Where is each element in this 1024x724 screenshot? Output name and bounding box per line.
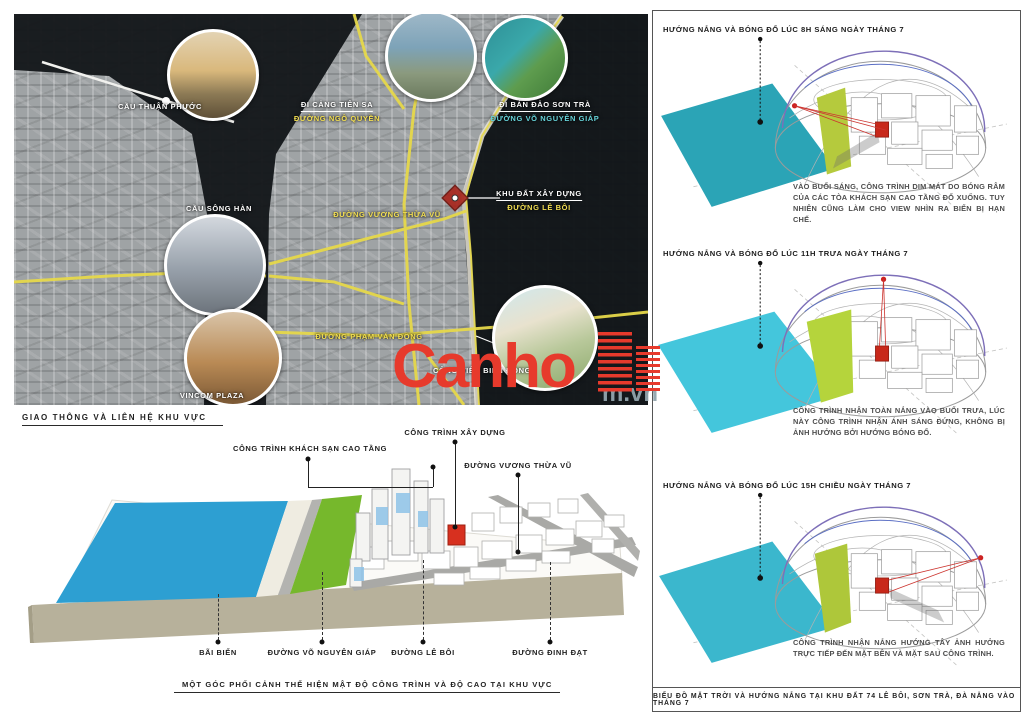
label-cau-song-han: CẦU SÔNG HÀN [186,204,252,213]
label-di-ban-dao-son-tra: ĐI BÁN ĐẢO SƠN TRÀ [499,100,591,112]
sun-panel-caption: BIỂU ĐỒ MẶT TRỜI VÀ HƯỚNG NẮNG TẠI KHU Đ… [653,687,1020,711]
sun-section-8h: HƯỚNG NẮNG VÀ BÓNG ĐỔ LÚC 8H SÁNG NGÀY T… [653,23,1020,247]
watermark-building-icon-2 [636,346,660,394]
leader-dot [548,640,553,645]
sun-desc-15h: CÔNG TRÌNH NHẬN NẮNG HƯỚNG TÂY ẢNH HƯỞNG… [793,637,1005,659]
leader-line [423,560,424,640]
label-di-cang-tien-sa: ĐI CẢNG TIÊN SA [301,100,373,112]
leader-dot [516,473,521,478]
watermark: m.vn Canho [392,330,660,410]
label-duong-dinh-dat: ĐƯỜNG ĐINH ĐẠT [512,648,588,657]
son-tra-peninsula-photo [482,15,568,101]
label-duong-vo-nguyen-giap-3d: ĐƯỜNG VÕ NGUYÊN GIÁP [268,648,377,657]
sun-title-11h: HƯỚNG NẮNG VÀ BÓNG ĐỔ LÚC 11H TRƯA NGÀY … [663,249,908,258]
construction-building [875,346,888,361]
leader-dot [516,550,521,555]
sun-desc-11h: CÔNG TRÌNH NHẬN TOÀN NẮNG VÀO BUỔI TRƯA,… [793,405,1005,438]
song-han-bridge-photo [164,214,266,316]
site-model [851,318,978,393]
sun-title-8h: HƯỚNG NẮNG VÀ BÓNG ĐỔ LÚC 8H SÁNG NGÀY T… [663,25,904,34]
sun-desc-8h: VÀO BUỔI SÁNG, CÔNG TRÌNH DIM MÁT DO BÓN… [793,181,1005,225]
leader-line [218,594,219,640]
map-caption: GIAO THÔNG VÀ LIÊN HỆ KHU VỰC [22,413,223,426]
leader-dot [453,440,458,445]
watermark-building-icon [598,332,632,394]
leader-line [308,487,433,488]
watermark-logo-text: Canho [392,336,575,398]
leader-dot [216,640,221,645]
leader-line [455,444,456,526]
leader-dot [320,640,325,645]
leader-dot [431,465,436,470]
label-duong-vuong-thua-vu: ĐƯỜNG VƯƠNG THỪA VŨ [333,210,441,219]
label-cau-thuan-phuoc: CẦU THUẬN PHƯỚC [118,102,202,111]
label-bai-bien: BÃI BIỂN [199,648,237,657]
leader-dot [421,640,426,645]
label-duong-vo-nguyen-giap: ĐƯỜNG VÕ NGUYÊN GIÁP [491,114,600,123]
sun-title-15h: HƯỚNG NẮNG VÀ BÓNG ĐỔ LÚC 15H CHIỀU NGÀY… [663,481,911,490]
sun-analysis-panel: HƯỚNG NẮNG VÀ BÓNG ĐỔ LÚC 8H SÁNG NGÀY T… [652,10,1021,712]
label-hotel-towers: CÔNG TRÌNH KHÁCH SẠN CAO TẦNG [233,444,387,453]
label-khu-dat-xay-dung: KHU ĐẤT XÂY DỰNG [496,189,582,201]
leader-line [433,469,434,487]
sun-section-11h: HƯỚNG NẮNG VÀ BÓNG ĐỔ LÚC 11H TRƯA NGÀY … [653,247,1020,471]
label-duong-le-boi: ĐƯỜNG LÊ BÔI [507,203,571,212]
label-duong-le-boi-3d: ĐƯỜNG LÊ BÔI [391,648,455,657]
label-duong-ngo-quyen: ĐƯỜNG NGÔ QUYỀN [294,114,380,123]
tien-sa-port-photo [385,14,477,102]
leader-dot [306,457,311,462]
leader-line [308,461,309,487]
page: CẦU THUẬN PHƯỚC CẦU SÔNG HÀN ĐI CẢNG TIÊ… [0,0,1024,724]
construction-building [875,578,888,593]
perspective-caption: MỘT GÓC PHỐI CẢNH THỂ HIỆN MẬT ĐỘ CÔNG T… [174,680,560,693]
sun-section-15h: HƯỚNG NẮNG VÀ BÓNG ĐỔ LÚC 15H CHIỀU NGÀY… [653,479,1020,703]
label-construction: CÔNG TRÌNH XÂY DỰNG [404,428,505,437]
site-model [851,94,978,169]
sea-3d [56,501,288,603]
leader-dot [453,525,458,530]
label-vincom-plaza: VINCOM PLAZA [180,391,244,400]
label-vuong-thua-vu: ĐƯỜNG VƯƠNG THỪA VŨ [464,461,572,470]
leader-line [550,562,551,640]
leader-line [322,572,323,640]
site-model [851,550,978,625]
leader-line [518,477,519,551]
construction-building [875,122,888,137]
